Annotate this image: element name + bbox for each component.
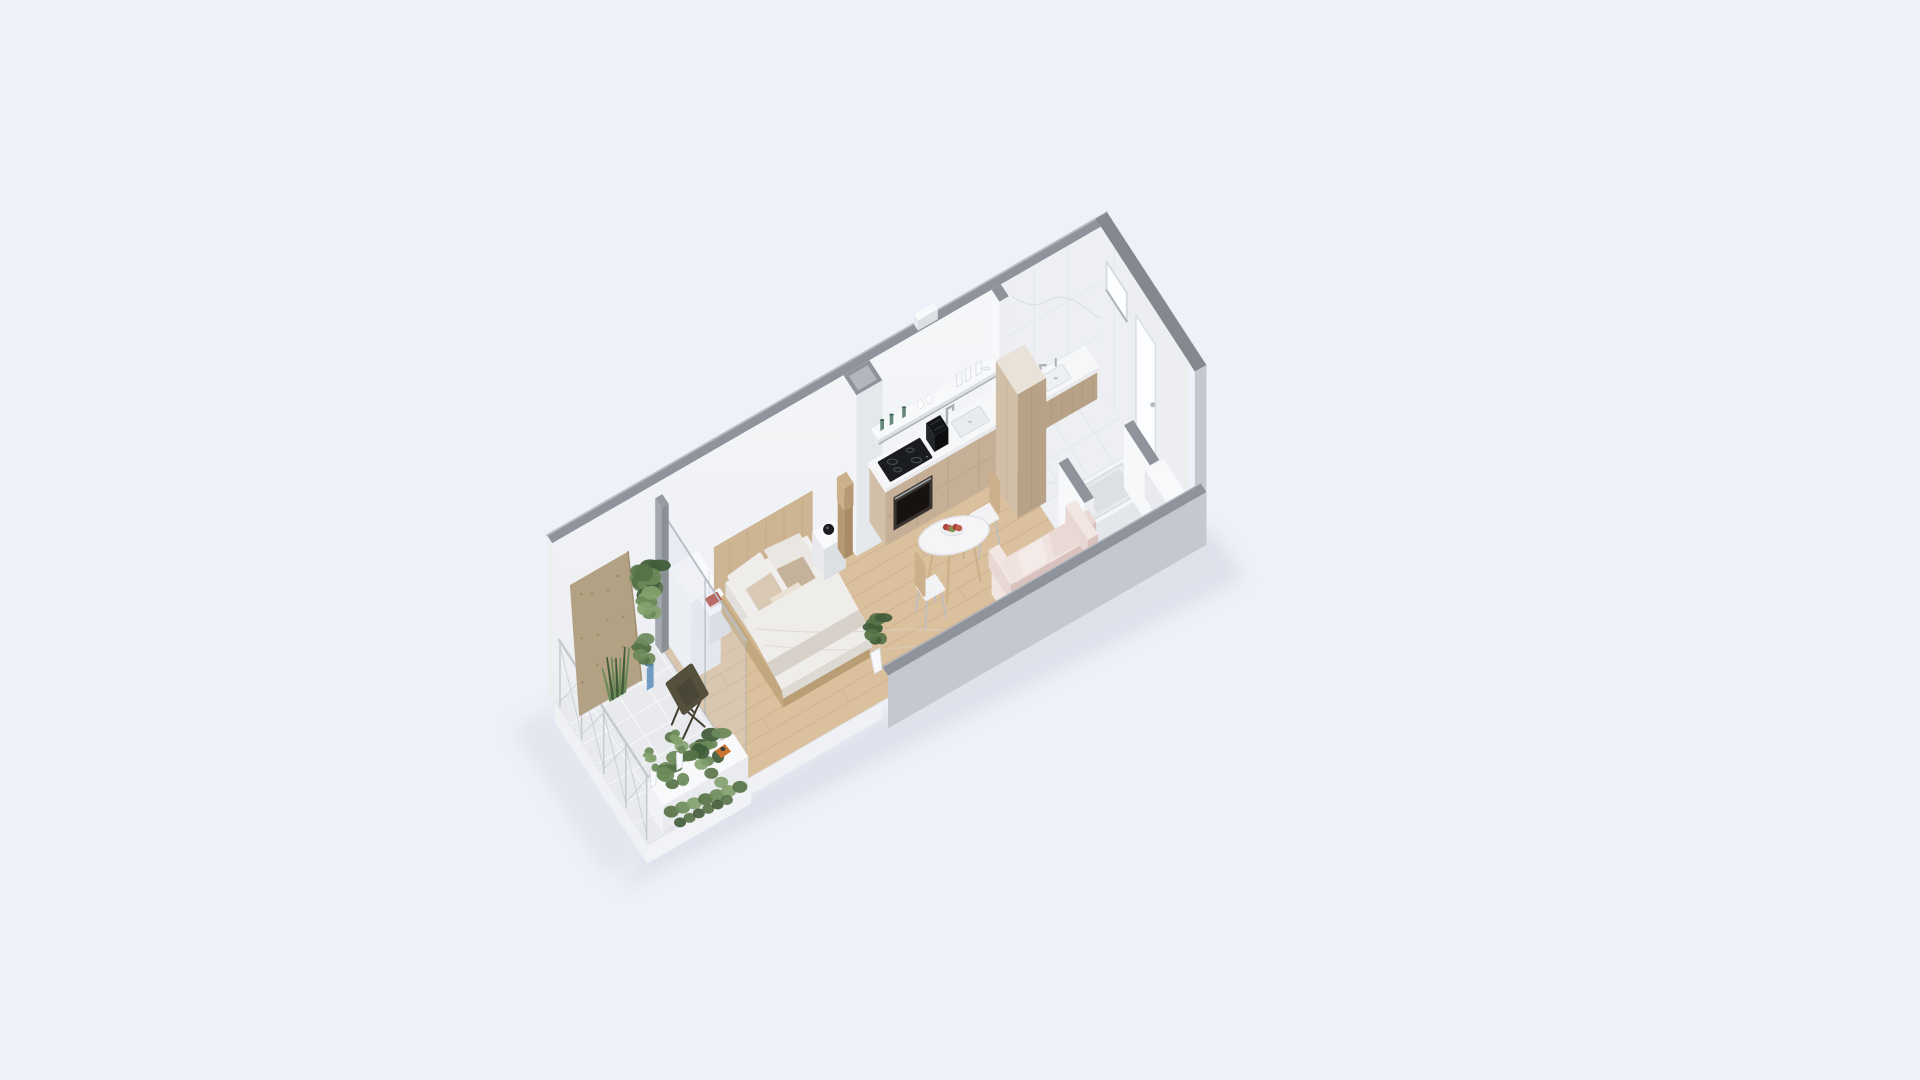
isometric-floor-plan [0,0,1920,1080]
floor-plan-figure [0,0,1920,1080]
fruit-bowl [941,524,963,536]
tall-cabinet [996,344,1046,518]
wood-lamp [837,472,854,559]
speaker-sphere [823,524,834,535]
